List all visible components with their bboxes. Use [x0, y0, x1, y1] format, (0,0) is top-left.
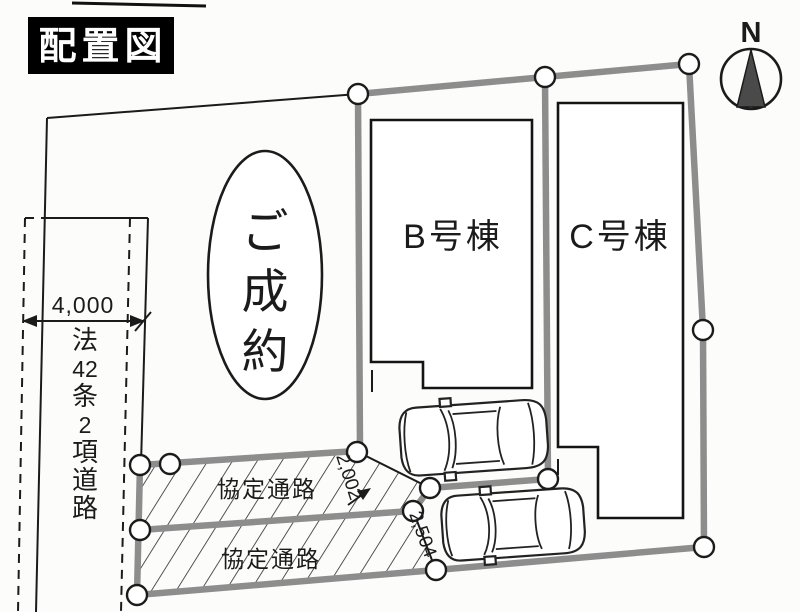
- road-east-setback-dashed-line: [121, 218, 130, 612]
- plot-west-boundary-line: [36, 118, 47, 612]
- car-1: [398, 392, 550, 484]
- building-c-outline: [558, 103, 683, 518]
- sold-label: ご 成 約: [242, 205, 289, 378]
- north-compass: N: [721, 17, 781, 109]
- road-east-edge-line: [141, 218, 148, 464]
- building-b-label: B号棟: [403, 218, 503, 256]
- page-title: 配置図: [38, 26, 167, 68]
- road-name-label: 法 42 条 2 項 道 路: [72, 325, 98, 523]
- svg-text:路: 路: [72, 493, 98, 523]
- svg-text:42: 42: [72, 356, 98, 382]
- site-plan-drawing: ご 成 約 B号棟 C号棟 協定通路 協定通路 4,000 2,002 2,50…: [0, 0, 800, 612]
- north-arrow-icon: [737, 50, 765, 107]
- road-west-setback-dashed-line: [18, 218, 25, 612]
- svg-text:成: 成: [242, 265, 289, 318]
- lower-passage-label: 協定通路: [221, 546, 321, 572]
- svg-text:約: 約: [242, 325, 289, 378]
- svg-text:2: 2: [79, 412, 92, 438]
- north-label: N: [741, 17, 762, 49]
- svg-text:ご: ご: [242, 205, 289, 258]
- road-width-value: 4,000: [52, 292, 115, 318]
- title-block: 配置図: [28, 17, 174, 74]
- site-plan-page: ご 成 約 B号棟 C号棟 協定通路 協定通路 4,000 2,002 2,50…: [0, 0, 800, 612]
- building-c-label: C号棟: [569, 218, 671, 256]
- upper-passage-label: 協定通路: [217, 476, 317, 502]
- scan-artifact-line: [72, 3, 206, 6]
- svg-text:項: 項: [72, 437, 98, 467]
- svg-text:条: 条: [72, 381, 98, 411]
- car-2: [440, 480, 587, 568]
- plot-north-boundary-thin-line: [47, 94, 358, 118]
- svg-text:道: 道: [72, 465, 98, 495]
- svg-text:法: 法: [72, 325, 98, 355]
